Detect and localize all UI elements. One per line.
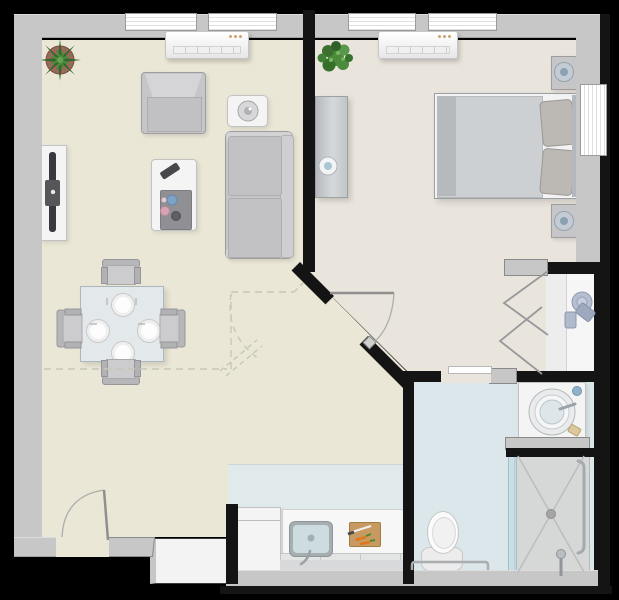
cutting-board: [349, 522, 381, 547]
chair-seat: [160, 314, 180, 344]
chair-seat: [63, 314, 83, 344]
dining-chair-top: [101, 259, 141, 286]
sofa: [225, 131, 293, 259]
partition-bathroom-left: [403, 372, 414, 584]
bathroom-door-jamb: [489, 368, 517, 384]
living-window-left: [125, 13, 197, 31]
dining-chair-bottom: [101, 358, 141, 385]
entry-door-jamb: [105, 537, 155, 557]
leaf-highlight: [341, 57, 345, 61]
entry-doorway-opening: [56, 536, 109, 557]
wall-left: [14, 14, 42, 557]
partition-kitchen-stub: [226, 504, 238, 584]
leaf: [331, 41, 341, 51]
sofa-cushion-bottom: [228, 198, 282, 258]
leaf: [345, 54, 353, 62]
nightstand-bottom: [551, 204, 577, 238]
chair-seat: [106, 359, 136, 379]
ac-vent: [173, 46, 241, 54]
living-window-right: [208, 13, 277, 31]
dining-chair-right: [159, 309, 186, 349]
coffee-table: [151, 159, 197, 231]
toilet-bowl: [427, 511, 459, 554]
bedroom-plant: [316, 38, 356, 78]
chair-arm: [65, 309, 82, 316]
bedroom-window-left: [348, 13, 416, 31]
leaf: [318, 54, 327, 63]
leaf-highlight: [329, 58, 333, 62]
sink-basin: [293, 525, 329, 553]
plant-center: [57, 57, 63, 63]
potted-plant-icon: [316, 38, 356, 78]
side-table: [227, 95, 268, 127]
coffee-table-tray: [160, 190, 192, 230]
chair-arm: [134, 267, 141, 284]
bathroom-sliding-door: [448, 366, 492, 374]
ac-indicator-lights: [239, 35, 242, 38]
wall-bottom-outline: [220, 586, 612, 594]
bed-pillow-top: [539, 99, 576, 148]
dining-chair-left: [57, 309, 84, 349]
sofa-cushion-top: [228, 136, 282, 196]
ac-indicator-lights: [448, 35, 451, 38]
chair-arm: [101, 360, 108, 377]
dresser: [315, 96, 348, 198]
dining-table: [80, 286, 164, 362]
partition-vanity-front: [506, 448, 594, 457]
shower-glass-panel: [508, 452, 517, 577]
partition-bathroom-top-left: [403, 371, 443, 382]
chair-arm: [161, 309, 178, 316]
partition-living-bedroom: [303, 10, 315, 272]
chair-arm: [101, 267, 108, 284]
chair-arm: [161, 342, 178, 349]
bed-blanket-fold: [437, 96, 456, 196]
vanity-counter: [518, 382, 586, 442]
partition-bathroom-top-right: [514, 371, 598, 382]
bedroom-ac-unit: [378, 31, 458, 59]
bed-pillow-bottom: [539, 148, 576, 197]
kitchen-sink: [289, 521, 333, 557]
sofa-backrest: [280, 135, 294, 258]
double-bed: [434, 93, 577, 199]
shower-floor: [514, 452, 590, 576]
ac-vent: [386, 46, 450, 54]
nightstand-top: [551, 56, 577, 90]
plate: [86, 319, 110, 343]
plate: [111, 293, 135, 317]
wall-bottom-left: [14, 537, 58, 557]
bedroom-side-window: [580, 84, 607, 156]
plate: [137, 319, 161, 343]
chair-seat: [106, 265, 136, 285]
apartment-floor-plan: [0, 0, 619, 600]
leaf-highlight: [336, 51, 340, 55]
chair-arm: [134, 360, 141, 377]
refrigerator-door-seam: [237, 520, 280, 521]
living-ac-unit: [165, 31, 249, 59]
tv-mount: [45, 180, 60, 206]
bedroom-window-right: [428, 13, 497, 31]
toilet-seat: [432, 517, 456, 549]
partition-closet-top: [544, 262, 600, 274]
chair-arm: [65, 342, 82, 349]
entry-stoop: [150, 538, 230, 584]
closet-door-jamb: [504, 259, 548, 276]
armchair: [141, 72, 206, 134]
refrigerator: [236, 507, 281, 574]
armchair-seat: [147, 97, 202, 132]
living-room-plant: [38, 38, 82, 82]
potted-plant-icon: [38, 38, 82, 82]
armchair-back: [145, 74, 202, 98]
